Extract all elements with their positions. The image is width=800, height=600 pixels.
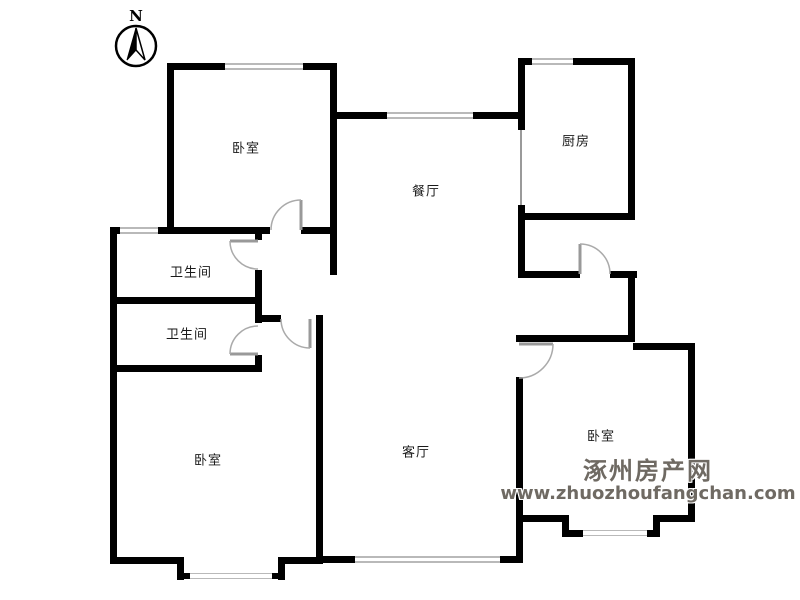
watermark: 涿州房产网 www.zhuozhoufangchan.com xyxy=(500,458,795,504)
door-arcs xyxy=(0,0,800,600)
watermark-site-name: 涿州房产网 xyxy=(500,458,795,484)
watermark-site-url: www.zhuozhoufangchan.com xyxy=(500,484,795,504)
floor-plan: N xyxy=(0,0,800,600)
